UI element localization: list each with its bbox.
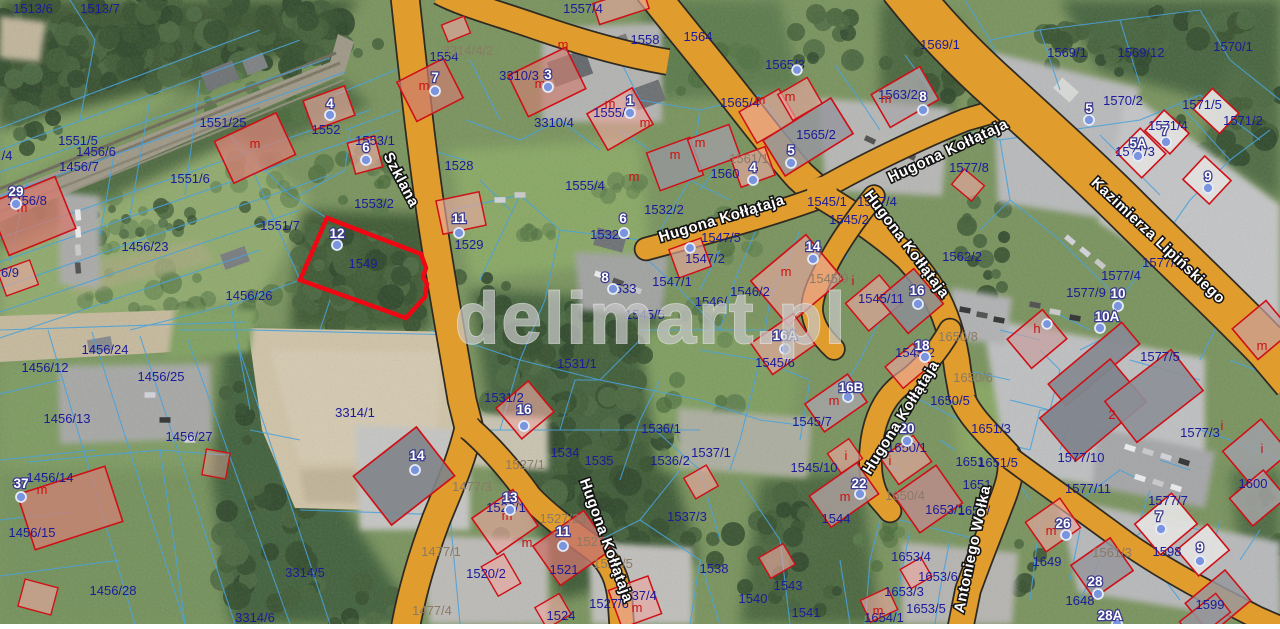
svg-text:1654/1: 1654/1	[864, 610, 904, 624]
svg-text:1456/12: 1456/12	[22, 360, 69, 375]
svg-text:1571/5: 1571/5	[1182, 97, 1222, 112]
svg-text:1571/2: 1571/2	[1223, 113, 1263, 128]
svg-text:1569/12: 1569/12	[1118, 45, 1165, 60]
svg-text:10: 10	[1110, 286, 1125, 301]
svg-text:6: 6	[362, 140, 370, 155]
svg-text:3310/3: 3310/3	[499, 68, 539, 83]
svg-text:1598: 1598	[1153, 544, 1182, 559]
svg-text:1651/3: 1651/3	[971, 421, 1011, 436]
svg-text:11: 11	[452, 211, 467, 226]
svg-text:1549: 1549	[349, 256, 378, 271]
svg-text:1456/13: 1456/13	[44, 411, 91, 426]
svg-text:1570/1: 1570/1	[1213, 39, 1253, 54]
svg-text:1552: 1552	[312, 122, 341, 137]
svg-text:1545/1: 1545/1	[807, 194, 847, 209]
svg-text:1456/6: 1456/6	[76, 144, 116, 159]
svg-text:1537/1: 1537/1	[691, 445, 731, 460]
svg-text:2: 2	[1108, 407, 1115, 422]
svg-text:1569/1: 1569/1	[1047, 45, 1087, 60]
svg-text:1520/2: 1520/2	[466, 566, 506, 581]
svg-text:5A: 5A	[1129, 136, 1147, 151]
svg-text:delimart.pl: delimart.pl	[455, 279, 845, 359]
svg-text:1: 1	[626, 93, 634, 108]
svg-text:1648: 1648	[1066, 593, 1095, 608]
svg-text:1577/11: 1577/11	[1065, 481, 1111, 496]
svg-text:6: 6	[619, 211, 627, 226]
svg-text:29: 29	[8, 184, 23, 199]
svg-text:1551/6: 1551/6	[170, 171, 210, 186]
svg-text:1456/27: 1456/27	[166, 429, 213, 444]
svg-text:1513/6: 1513/6	[13, 1, 53, 16]
svg-text:1456/28: 1456/28	[90, 583, 137, 598]
svg-text:1651/5: 1651/5	[978, 455, 1018, 470]
svg-text:1649: 1649	[1033, 554, 1062, 569]
svg-text:1653/5: 1653/5	[906, 601, 946, 616]
svg-text:8: 8	[919, 89, 927, 104]
svg-text:1557/4: 1557/4	[563, 1, 603, 16]
svg-text:1565/2: 1565/2	[796, 127, 836, 142]
svg-text:1535: 1535	[585, 453, 614, 468]
svg-text:1456/7: 1456/7	[59, 159, 99, 174]
svg-text:m: m	[640, 115, 651, 130]
svg-text:1577/9: 1577/9	[1066, 285, 1106, 300]
svg-text:i: i	[889, 453, 892, 468]
svg-text:1558: 1558	[631, 32, 660, 47]
svg-text:9: 9	[1196, 540, 1204, 555]
svg-text:1562/2: 1562/2	[942, 249, 982, 264]
svg-text:1577/10: 1577/10	[1058, 450, 1105, 465]
svg-text:m: m	[670, 147, 681, 162]
svg-text:1653/6: 1653/6	[918, 569, 958, 584]
svg-text:m: m	[558, 37, 569, 52]
svg-text:1529: 1529	[455, 237, 484, 252]
svg-text:1456/23: 1456/23	[122, 239, 169, 254]
svg-text:1527/1: 1527/1	[505, 457, 545, 472]
svg-text:1545/11: 1545/11	[858, 291, 904, 306]
svg-text:i: i	[1261, 441, 1264, 456]
svg-text:1569/1: 1569/1	[920, 37, 960, 52]
svg-text:1551/7: 1551/7	[260, 218, 300, 233]
svg-text:10A: 10A	[1095, 309, 1120, 324]
svg-text:1456/25: 1456/25	[138, 369, 185, 384]
svg-text:1545/2: 1545/2	[829, 212, 869, 227]
svg-text:1536/2: 1536/2	[650, 453, 690, 468]
svg-text:m: m	[522, 535, 533, 550]
svg-text:18: 18	[914, 338, 930, 353]
svg-text:3310/4: 3310/4	[534, 115, 574, 130]
svg-text:1577/8: 1577/8	[949, 160, 989, 175]
svg-text:m: m	[785, 89, 796, 104]
svg-text:m: m	[629, 169, 640, 184]
svg-text:1541: 1541	[792, 605, 821, 620]
svg-text:i: i	[845, 448, 848, 463]
svg-text:7: 7	[1155, 509, 1163, 524]
svg-text:m: m	[1257, 338, 1268, 353]
svg-text:1524: 1524	[547, 608, 576, 623]
svg-text:13: 13	[502, 490, 518, 505]
svg-text:3314/1: 3314/1	[335, 405, 375, 420]
svg-text:4: 4	[749, 160, 757, 175]
svg-text:16B: 16B	[839, 380, 864, 395]
svg-text:m: m	[781, 264, 792, 279]
svg-text:1456/15: 1456/15	[9, 525, 56, 540]
svg-text:11: 11	[556, 524, 571, 539]
svg-text:7: 7	[431, 70, 439, 85]
svg-text:1545/10: 1545/10	[791, 460, 838, 475]
svg-text:1560: 1560	[711, 166, 740, 181]
svg-text:/4: /4	[2, 148, 13, 163]
svg-text:m: m	[840, 489, 851, 504]
svg-text:1536/1: 1536/1	[641, 421, 681, 436]
svg-text:1543: 1543	[774, 578, 803, 593]
svg-text:3314/5: 3314/5	[285, 565, 325, 580]
svg-text:m: m	[419, 78, 430, 93]
svg-text:1537/3: 1537/3	[667, 509, 707, 524]
svg-text:5: 5	[1085, 101, 1093, 116]
svg-text:m: m	[605, 96, 616, 111]
svg-text:1456/24: 1456/24	[82, 342, 129, 357]
svg-text:1521: 1521	[550, 562, 579, 577]
svg-text:4: 4	[326, 96, 334, 111]
svg-text:1600: 1600	[1239, 476, 1268, 491]
svg-text:1534: 1534	[551, 445, 580, 460]
svg-text:m: m	[632, 600, 643, 615]
svg-text:1577/7: 1577/7	[1148, 493, 1188, 508]
svg-text:1477/4: 1477/4	[412, 603, 452, 618]
svg-text:1555/4: 1555/4	[565, 178, 605, 193]
svg-text:1570/2: 1570/2	[1103, 93, 1143, 108]
svg-text:14: 14	[805, 239, 821, 254]
svg-text:1456/26: 1456/26	[226, 288, 273, 303]
svg-text:28: 28	[1087, 574, 1103, 589]
svg-text:37: 37	[13, 476, 28, 491]
svg-text:1653/4: 1653/4	[891, 549, 931, 564]
svg-text:1547/5: 1547/5	[701, 230, 741, 245]
svg-text:16: 16	[909, 283, 925, 298]
svg-text:1477/1: 1477/1	[421, 544, 461, 559]
svg-text:1561/3: 1561/3	[1092, 545, 1132, 560]
svg-text:1538: 1538	[700, 561, 729, 576]
svg-text:m: m	[250, 136, 261, 151]
svg-text:1544: 1544	[822, 511, 851, 526]
svg-text:1564: 1564	[684, 29, 713, 44]
svg-text:m: m	[829, 393, 840, 408]
svg-text:12: 12	[329, 226, 344, 241]
svg-text:1456/14: 1456/14	[27, 470, 74, 485]
svg-text:28A: 28A	[1098, 608, 1123, 623]
svg-text:7: 7	[1161, 123, 1169, 138]
svg-text:m: m	[873, 603, 884, 618]
svg-text:m: m	[695, 135, 706, 150]
svg-text:i: i	[852, 273, 855, 288]
svg-text:1577/3: 1577/3	[1180, 425, 1220, 440]
svg-text:3314/4/2: 3314/4/2	[443, 43, 494, 58]
svg-text:1513/7: 1513/7	[80, 1, 120, 16]
svg-text:m: m	[881, 91, 892, 106]
svg-text:1551/25: 1551/25	[200, 115, 247, 130]
svg-text:1528: 1528	[445, 158, 474, 173]
svg-text:h: h	[1033, 321, 1040, 336]
svg-text:9: 9	[1204, 169, 1212, 184]
svg-text:1650/4: 1650/4	[885, 488, 925, 503]
svg-text:1577/5: 1577/5	[1140, 349, 1180, 364]
svg-text:1599: 1599	[1196, 597, 1225, 612]
svg-text:m: m	[37, 482, 48, 497]
svg-text:1650/8: 1650/8	[938, 329, 978, 344]
svg-text:16: 16	[516, 402, 532, 417]
svg-text:14: 14	[409, 448, 425, 463]
svg-text:i: i	[1221, 418, 1224, 433]
svg-text:1653/3: 1653/3	[884, 584, 924, 599]
svg-text:1532/2: 1532/2	[644, 202, 684, 217]
svg-text:6/9: 6/9	[1, 265, 19, 280]
svg-text:22: 22	[851, 476, 866, 491]
svg-text:1650/6: 1650/6	[953, 370, 993, 385]
svg-text:m: m	[755, 92, 766, 107]
svg-text:1553/2: 1553/2	[354, 196, 394, 211]
svg-text:3314/6: 3314/6	[235, 610, 275, 624]
svg-text:1477/3: 1477/3	[452, 479, 492, 494]
svg-text:1553/1: 1553/1	[355, 133, 395, 148]
svg-text:1577/4: 1577/4	[1101, 268, 1141, 283]
svg-text:1650/5: 1650/5	[930, 393, 970, 408]
svg-text:1540: 1540	[739, 591, 768, 606]
svg-text:3: 3	[544, 67, 552, 82]
svg-text:1545/7: 1545/7	[792, 414, 832, 429]
svg-text:5: 5	[787, 143, 795, 158]
svg-text:26: 26	[1055, 516, 1071, 531]
